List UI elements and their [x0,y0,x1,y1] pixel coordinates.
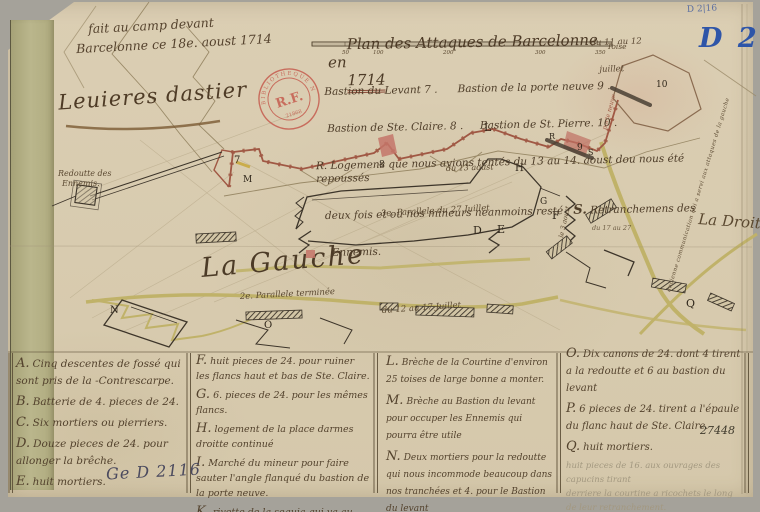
legend-text: Six mortiers ou pierriers. [33,417,168,429]
signature-flourish [66,121,220,129]
svg-text:O: O [264,320,272,331]
key-line3: R. Logemens que nous avions tentés du 13… [316,152,716,185]
legend-entry-C: C.Six mortiers ou pierriers. [16,414,181,432]
legend-entry-M: M.Brèche au Bastion du levant pour occup… [386,392,554,445]
legend-entry-N: N.Deux mortiers pour la redoutte qui nou… [386,448,554,512]
svg-text:N: N [110,305,119,316]
legend-entry-O: O.Dix canons de 24. dont 4 tirent a la r… [566,345,744,397]
svg-text:Q: Q [686,297,695,310]
library-stamp: BIBLIOTHEQUE NATIONALE R.F. 21868 [0,0,327,218]
red-square-mark [306,250,315,258]
legend-text: huit mortiers. [583,442,653,453]
legend-text: Cinq descentes de fossé qui sont pris de… [16,358,181,387]
key-line4: deux fois et ou nos mineurs neanmoins re… [317,202,717,223]
key-line4-text: deux fois et ou nos mineurs neanmoins re… [325,205,574,222]
scanned-siege-map: 50 100 200 300 350 Toise BIBLIOTHEQUE NA… [0,0,760,512]
shelfmark-small: D 2|16 [687,3,718,15]
legend-letter: G. [196,387,210,402]
legend-letter: N. [386,449,401,464]
legend-text: huit mortiers. [33,476,106,488]
shelfmark-blue: D 2 [698,23,760,54]
legend-text: Brèche de la Courtine d'environ 25 toise… [386,358,548,385]
key-line2: Bastion de Ste. Claire. 8 . Bastion de S… [315,115,715,136]
legend-text: Dix canons de 24. dont 4 tirent a la red… [566,349,740,394]
legend-letter: B. [16,394,30,409]
legend-letter: E. [16,474,30,489]
legend-entry-A: A.Cinq descentes de fossé qui sont pris … [16,355,181,390]
inventory-number: 27448 [700,424,735,437]
legend-entry-F: F.huit pieces de 24. pour ruiner les fla… [196,353,370,384]
svg-text:M: M [243,175,252,185]
legend-text: 6. pieces de 24. pour les mêmes flancs. [196,390,368,416]
legend-letter: P. [566,401,576,416]
key-line4-rest: Retranchemens des [587,202,696,216]
faded-pencil-notes: huit pieces de 16. aux ouvrages des capu… [566,459,744,512]
stamp-number: 21868 [285,109,303,120]
legend-entry-G: G.6. pieces de 24. pour les mêmes flancs… [196,387,370,418]
legend-letter: D. [16,436,30,451]
faded-note-line: huit pieces de 16. aux ouvrages des capu… [566,459,744,487]
legend-text: logement de la place darmes droitte cont… [196,424,354,450]
legend-text: Brèche au Bastion du levant pour occuper… [386,397,535,441]
legend-column-2: F.huit pieces de 24. pour ruiner les fla… [196,353,370,512]
faded-note-line: derriere la courtine a ricochets le long… [566,487,744,512]
key-line4-letter: S. [573,202,587,217]
legend-text: huit pieces de 24. pour ruiner les flanc… [196,356,370,382]
legend-letter: Q. [566,439,580,454]
legend-letter: M. [386,393,403,408]
legend-letter: C. [16,415,30,430]
legend-entry-L: L.Brèche de la Courtine d'environ 25 toi… [386,353,554,389]
key-line1: Bastion du Levant 7 . Bastion de la port… [314,78,714,99]
legend-text: rivette de la sequia qui va au fossé de … [196,507,357,512]
legend-letter: F. [196,353,207,368]
legend-text: Marché du mineur pour faire sauter l'ang… [196,458,369,499]
legend-entry-I: I.Marché du mineur pour faire sauter l'a… [196,455,370,501]
legend-entry-H: H.logement de la place darmes droitte co… [196,421,370,452]
legend-entry-Q: Q.huit mortiers. [566,438,744,456]
map-key-paragraph: Bastion du Levant 7 . Bastion de la port… [314,53,719,285]
title-date-line1: du 11 au 12 [590,37,660,48]
legend-text: Deux mortiers pour la redoutte qui nous … [386,453,552,512]
redoubt-label-line1: Redoutte des [57,169,112,178]
legend-entry-K: K.rivette de la sequia qui va au fossé d… [196,504,370,512]
legend-entry-B: B.Batterie de 4. pieces de 24. [16,393,181,411]
key-line5: Ennemis. [318,239,718,260]
legend-letter: K. [196,504,210,512]
redoubt-label-line2: Ennemis. [61,179,100,188]
legend-column-3: L.Brèche de la Courtine d'environ 25 toi… [386,353,554,512]
legend-letter: L. [386,354,399,369]
legend-letter: H. [196,421,211,436]
legend-letter: O. [566,346,580,361]
legend-letter: A. [16,356,30,371]
svg-text:7: 7 [234,155,240,166]
legend-text: Batterie de 4. pieces de 24. [33,396,179,408]
